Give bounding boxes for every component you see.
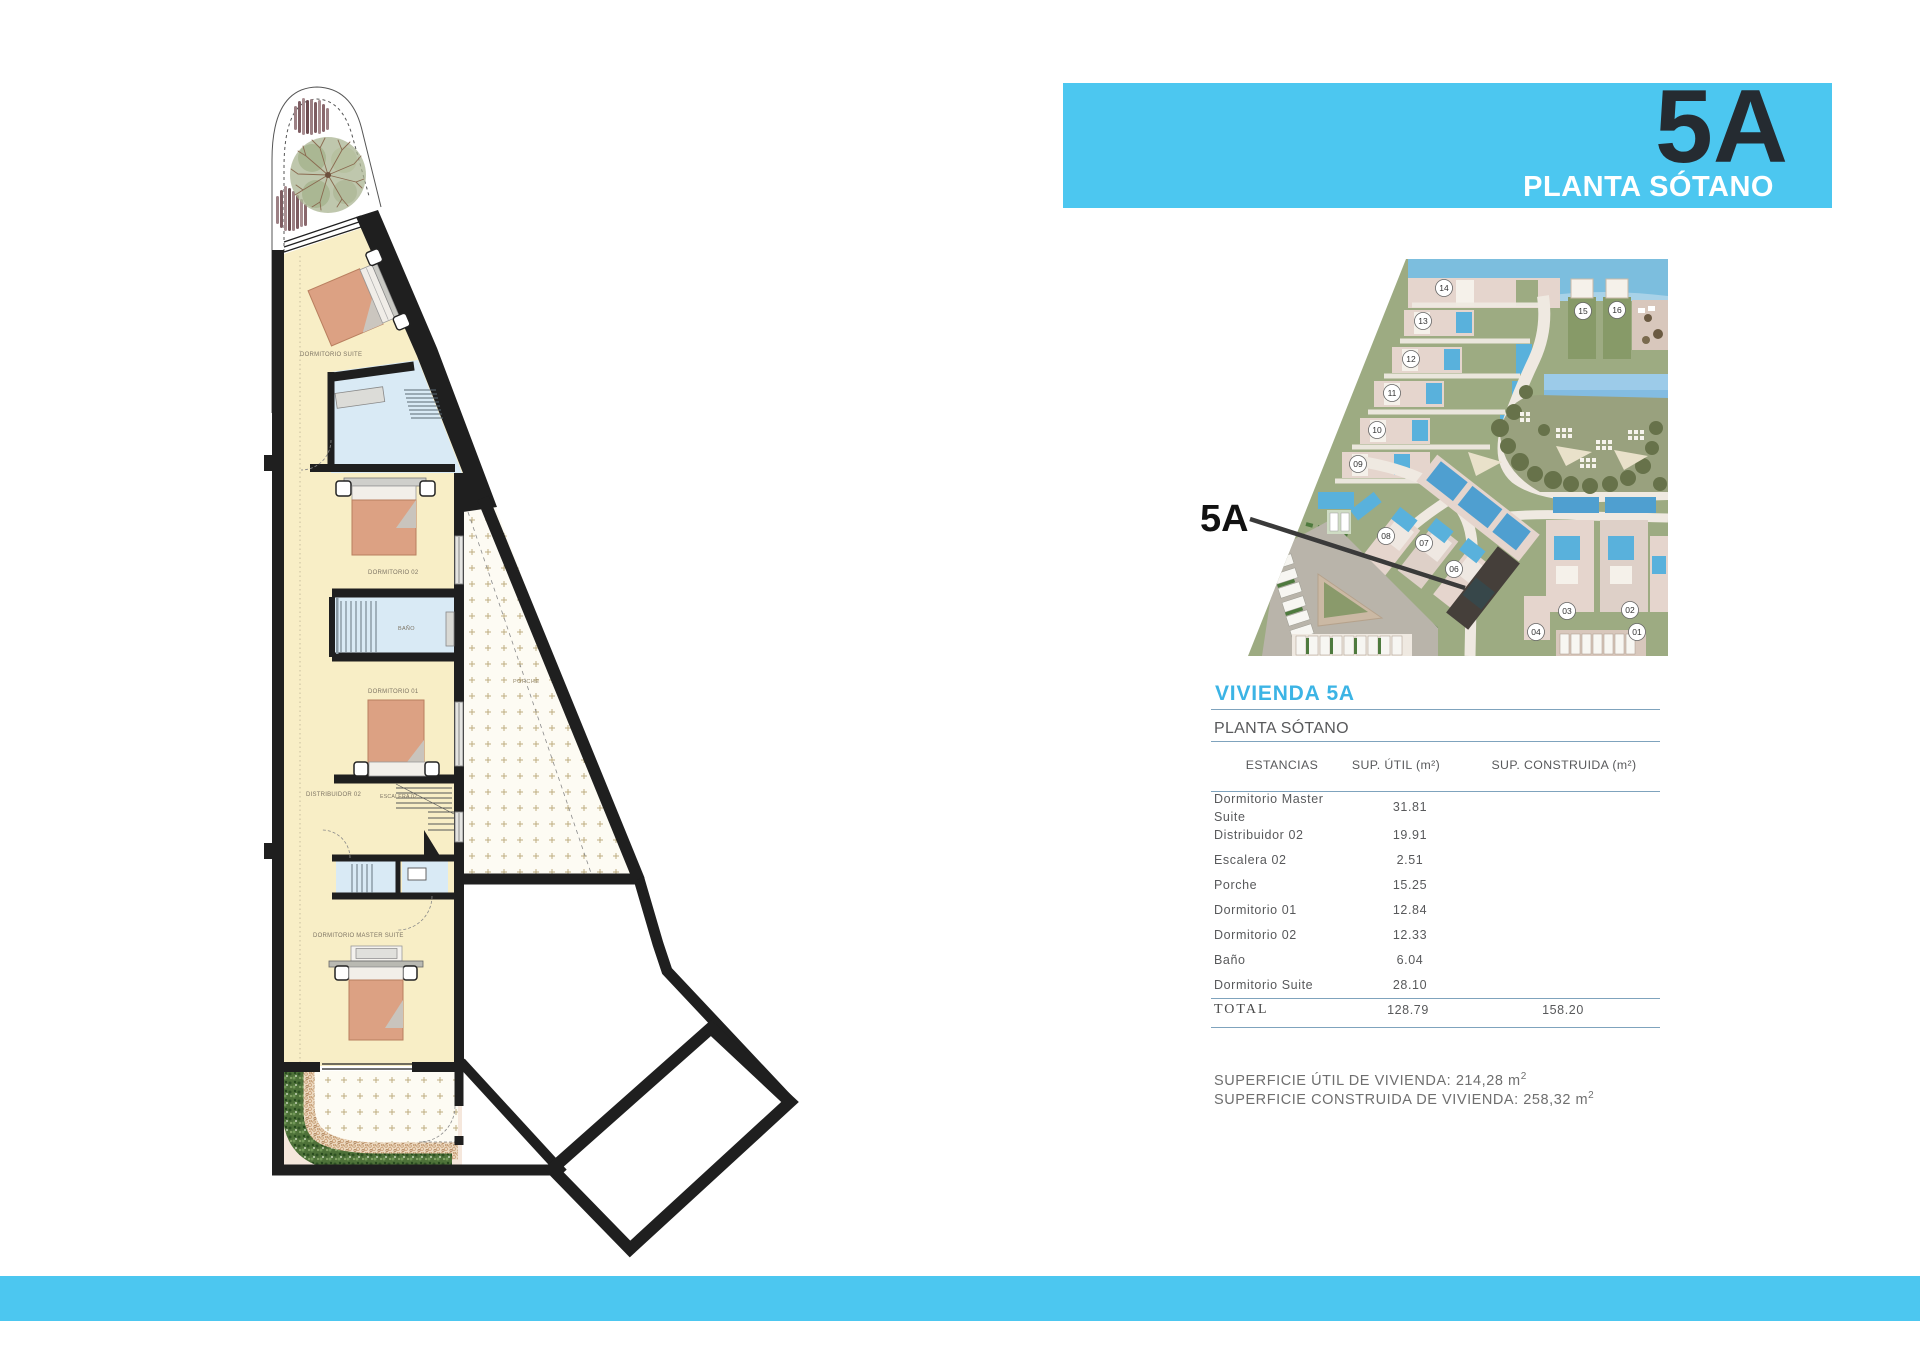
svg-text:09: 09 xyxy=(1353,459,1363,469)
svg-text:06: 06 xyxy=(1449,564,1459,574)
svg-text:DORMITORIO MASTER SUITE: DORMITORIO MASTER SUITE xyxy=(313,933,404,939)
svg-text:11: 11 xyxy=(1388,388,1397,398)
svg-text:01: 01 xyxy=(1632,627,1642,637)
svg-text:PORCHE: PORCHE xyxy=(513,679,540,685)
svg-text:5A: 5A xyxy=(1200,498,1249,540)
svg-text:DORMITORIO SUITE: DORMITORIO SUITE xyxy=(300,352,362,358)
svg-text:14: 14 xyxy=(1439,283,1449,293)
svg-text:03: 03 xyxy=(1562,606,1572,616)
svg-text:BAÑO: BAÑO xyxy=(398,625,415,632)
svg-text:DORMITORIO 01: DORMITORIO 01 xyxy=(368,689,419,695)
svg-text:10: 10 xyxy=(1372,425,1382,435)
svg-text:04: 04 xyxy=(1531,627,1541,637)
svg-text:ESCALERA 02: ESCALERA 02 xyxy=(380,794,417,800)
svg-text:15: 15 xyxy=(1578,306,1588,316)
svg-text:13: 13 xyxy=(1418,316,1428,326)
svg-text:07: 07 xyxy=(1419,538,1429,548)
svg-text:DISTRIBUIDOR 02: DISTRIBUIDOR 02 xyxy=(306,792,362,798)
svg-text:02: 02 xyxy=(1625,605,1635,615)
svg-text:16: 16 xyxy=(1612,305,1622,315)
svg-text:DORMITORIO 02: DORMITORIO 02 xyxy=(368,570,419,576)
svg-text:08: 08 xyxy=(1381,531,1391,541)
svg-text:12: 12 xyxy=(1406,354,1416,364)
